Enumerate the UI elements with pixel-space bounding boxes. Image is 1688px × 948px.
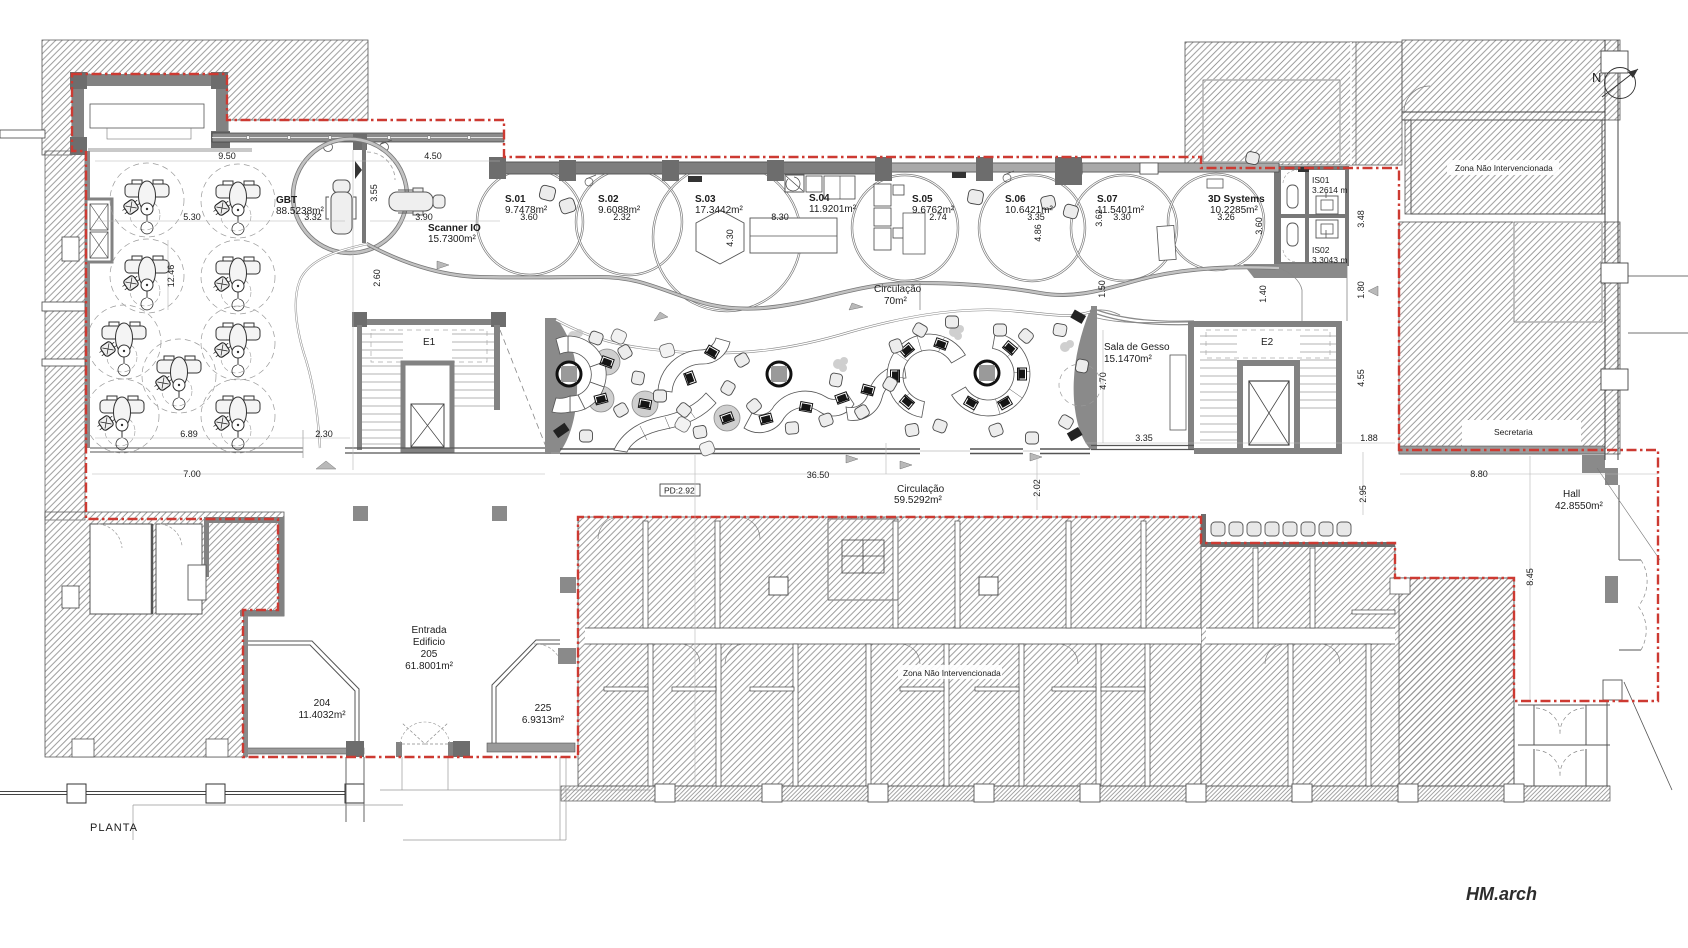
svg-text:4.55: 4.55 xyxy=(1356,369,1366,387)
svg-text:3.55: 3.55 xyxy=(369,184,379,202)
svg-text:9.50: 9.50 xyxy=(218,151,236,161)
svg-text:2.02: 2.02 xyxy=(1032,479,1042,497)
svg-text:5.30: 5.30 xyxy=(183,212,201,222)
svg-text:Zona Não Intervencionada: Zona Não Intervencionada xyxy=(1455,163,1553,173)
svg-text:1.88: 1.88 xyxy=(1360,433,1378,443)
svg-text:GBT: GBT xyxy=(276,195,297,206)
svg-text:S.02: S.02 xyxy=(598,194,619,205)
svg-text:IS02: IS02 xyxy=(1312,245,1330,255)
svg-text:1.40: 1.40 xyxy=(1258,285,1268,303)
svg-text:36.50: 36.50 xyxy=(807,470,830,480)
svg-text:HM.arch: HM.arch xyxy=(1466,884,1537,904)
svg-text:Sala de Gesso: Sala de Gesso xyxy=(1104,342,1170,353)
svg-text:225: 225 xyxy=(535,703,552,714)
svg-text:E1: E1 xyxy=(423,337,436,348)
svg-text:205: 205 xyxy=(421,649,438,660)
svg-text:6.9313m²: 6.9313m² xyxy=(522,715,565,726)
svg-text:S.01: S.01 xyxy=(505,194,526,205)
svg-text:7.00: 7.00 xyxy=(183,469,201,479)
svg-text:Secretaria: Secretaria xyxy=(1494,427,1533,437)
svg-text:1.50: 1.50 xyxy=(1097,280,1107,298)
svg-text:3.60: 3.60 xyxy=(1254,217,1264,235)
svg-text:3.60: 3.60 xyxy=(520,212,538,222)
svg-text:3.30: 3.30 xyxy=(1113,212,1131,222)
svg-text:61.8001m²: 61.8001m² xyxy=(405,661,453,672)
svg-text:4.86: 4.86 xyxy=(1033,224,1043,242)
svg-text:N: N xyxy=(1592,70,1601,85)
svg-text:3.32: 3.32 xyxy=(304,212,322,222)
svg-text:3.26: 3.26 xyxy=(1217,212,1235,222)
svg-text:PD:2.92: PD:2.92 xyxy=(664,486,695,496)
svg-text:2.30: 2.30 xyxy=(315,429,333,439)
svg-text:S.05: S.05 xyxy=(912,194,933,205)
svg-text:Hall: Hall xyxy=(1563,489,1580,500)
svg-text:3D Systems: 3D Systems xyxy=(1208,194,1265,205)
svg-text:70m²: 70m² xyxy=(884,296,907,307)
svg-text:8.30: 8.30 xyxy=(771,212,789,222)
svg-text:11.4032m²: 11.4032m² xyxy=(298,710,346,721)
svg-text:12.46: 12.46 xyxy=(166,265,176,288)
svg-text:3.62: 3.62 xyxy=(1094,209,1104,227)
svg-text:3.35: 3.35 xyxy=(1027,212,1045,222)
svg-text:3.35: 3.35 xyxy=(1135,433,1153,443)
svg-text:2.74: 2.74 xyxy=(929,212,947,222)
svg-text:Circulação: Circulação xyxy=(874,284,922,295)
svg-text:Entrada: Entrada xyxy=(411,625,446,636)
svg-text:42.8550m²: 42.8550m² xyxy=(1555,501,1603,512)
svg-text:S.06: S.06 xyxy=(1005,194,1026,205)
svg-text:204: 204 xyxy=(314,698,331,709)
svg-text:PLANTA: PLANTA xyxy=(90,822,138,834)
svg-text:Scanner IO: Scanner IO xyxy=(428,223,481,234)
svg-text:15.1470m²: 15.1470m² xyxy=(1104,354,1152,365)
svg-text:6.89: 6.89 xyxy=(180,429,198,439)
svg-text:3.3043 m: 3.3043 m xyxy=(1312,255,1347,265)
svg-text:8.80: 8.80 xyxy=(1470,469,1488,479)
svg-text:4.50: 4.50 xyxy=(424,151,442,161)
svg-text:S.04: S.04 xyxy=(809,193,830,204)
svg-text:8.45: 8.45 xyxy=(1525,568,1535,586)
svg-text:2.95: 2.95 xyxy=(1358,485,1368,503)
svg-text:3.2614 m: 3.2614 m xyxy=(1312,185,1347,195)
svg-text:Circulação: Circulação xyxy=(897,484,945,495)
svg-text:15.7300m²: 15.7300m² xyxy=(428,234,476,245)
svg-text:11.9201m²: 11.9201m² xyxy=(809,204,857,215)
svg-text:3.48: 3.48 xyxy=(1356,210,1366,228)
svg-text:59.5292m²: 59.5292m² xyxy=(894,495,942,506)
svg-text:Zona Não Intervencionada: Zona Não Intervencionada xyxy=(903,668,1001,678)
svg-text:2.60: 2.60 xyxy=(372,269,382,287)
svg-text:3.90: 3.90 xyxy=(415,212,433,222)
svg-text:S.07: S.07 xyxy=(1097,194,1118,205)
svg-text:E2: E2 xyxy=(1261,337,1274,348)
svg-text:1.80: 1.80 xyxy=(1356,281,1366,299)
svg-text:S.03: S.03 xyxy=(695,194,716,205)
svg-text:Edificio: Edificio xyxy=(413,637,446,648)
svg-text:4.70: 4.70 xyxy=(1098,372,1108,390)
svg-text:2.32: 2.32 xyxy=(613,212,631,222)
svg-text:17.3442m²: 17.3442m² xyxy=(695,205,743,216)
svg-text:IS01: IS01 xyxy=(1312,175,1330,185)
svg-text:4.30: 4.30 xyxy=(725,229,735,247)
